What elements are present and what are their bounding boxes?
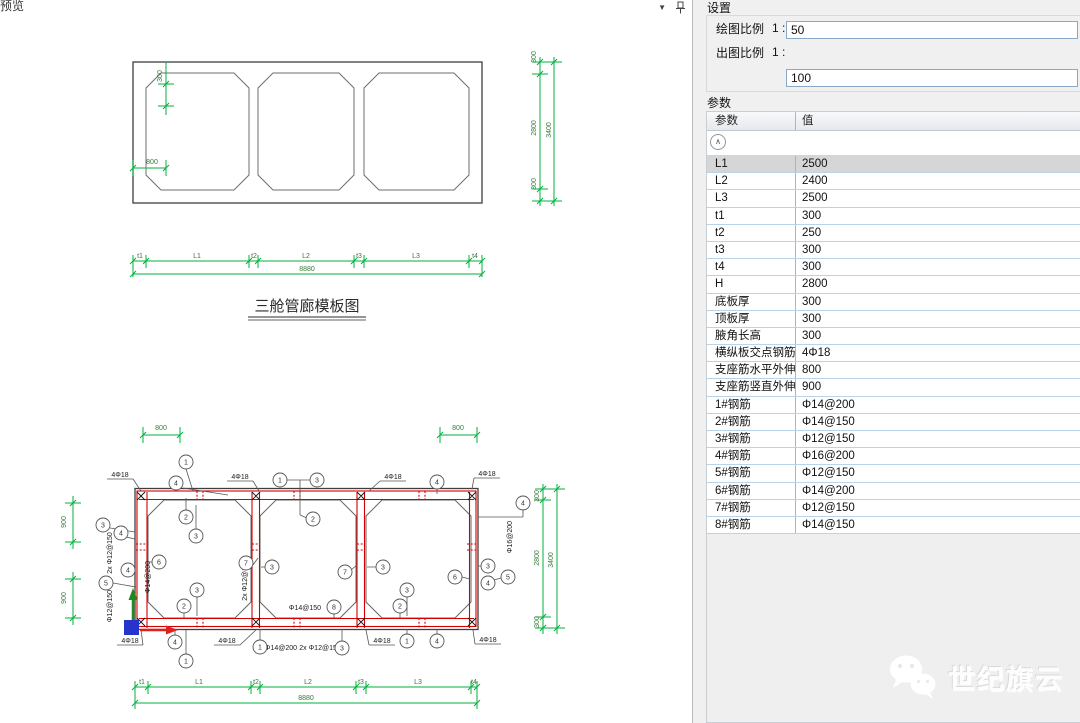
rebar-label: Φ12@150 [107,590,114,622]
dimension-label: 300 [534,490,541,502]
rebar-callout-number: 3 [194,534,198,541]
dimension-label: 300 [157,70,164,82]
rebar-label: 4Φ18 [218,638,235,645]
dimension-label: 8880 [299,266,315,273]
param-value-cell[interactable]: 300 [796,208,1080,224]
param-name-cell: 5#钢筋 [707,465,796,481]
rebar-callout-number: 5 [506,575,510,582]
rebar-label: Φ14@200 [265,645,297,652]
param-value-cell[interactable]: 300 [796,311,1080,327]
param-value-cell[interactable]: 300 [796,259,1080,275]
rebar-callout-number: 2 [184,515,188,522]
dimension-label: 2800 [534,550,541,566]
param-name-column-header[interactable]: 参数 [707,112,796,130]
param-name-cell: 3#钢筋 [707,431,796,447]
param-row[interactable]: 4#钢筋Φ16@200 [707,448,1080,465]
dimension-label: 900 [61,592,68,604]
param-value-column-header[interactable]: 值 [796,112,1080,130]
param-value-cell[interactable]: 300 [796,294,1080,310]
dimension-label: 300 [534,616,541,628]
param-row[interactable]: 横纵板交点钢筋4Φ18 [707,345,1080,362]
param-value-cell[interactable]: Φ12@150 [796,500,1080,516]
param-name-cell: 2#钢筋 [707,414,796,430]
ucs-axis-icon [124,588,178,635]
param-row[interactable]: 7#钢筋Φ12@150 [707,500,1080,517]
wechat-icon [886,653,940,701]
rebar-callout-number: 4 [486,581,490,588]
rebar-callout-number: 1 [278,478,282,485]
parameters-grid: 参数 值 ∧ L12500L22400L32500t1300t2250t3300… [706,111,1080,723]
dimension-label: 3400 [548,552,555,568]
rebar-callout-number: 4 [435,480,439,487]
param-row[interactable]: L12500 [707,156,1080,173]
rebar-label: Φ16@200 [507,521,514,553]
param-value-cell[interactable]: 300 [796,328,1080,344]
param-name-cell: 支座筋竖直外伸 [707,379,796,395]
dimension-label: t3 [356,253,362,260]
param-row[interactable]: t3300 [707,242,1080,259]
param-name-cell: L1 [707,156,796,172]
dimension-label: 800 [452,425,464,432]
parameters-table-body: L12500L22400L32500t1300t2250t3300t4300H2… [707,156,1080,534]
rebar-callout-number: 2 [311,517,315,524]
param-name-cell: 底板厚 [707,294,796,310]
param-value-cell[interactable]: Φ12@150 [796,431,1080,447]
rebar-callout-number: 6 [453,575,457,582]
param-row[interactable]: 2#钢筋Φ14@150 [707,414,1080,431]
preview-panel: 预览 ▼ 三舱管廊模板图 30080030028003003400t1L1t2L… [0,0,692,723]
dimension-label: t4 [472,253,478,260]
properties-panel: 设置 绘图比例 1 : 出图比例 1 : 参数 参数 值 ∧ L12500L22… [692,0,1080,723]
param-row[interactable]: H2800 [707,276,1080,293]
param-name-cell: 顶板厚 [707,311,796,327]
dimension-label: 2800 [531,120,538,136]
rebar-callout-number: 3 [486,564,490,571]
dimension-label: 800 [146,159,158,166]
param-row[interactable]: 支座筋竖直外伸900 [707,379,1080,396]
rebar-label: 4Φ18 [384,474,401,481]
dimension-label: 3400 [546,122,553,138]
rebar-label: 4Φ18 [231,474,248,481]
rebar-callout-number: 2 [398,604,402,611]
param-row[interactable]: 1#钢筋Φ14@200 [707,397,1080,414]
dimension-label: L2 [302,253,310,260]
rebar-callout-number: 4 [126,568,130,575]
rebar-callout-number: 1 [184,659,188,666]
param-row[interactable]: 底板厚300 [707,294,1080,311]
param-name-cell: t3 [707,242,796,258]
param-row[interactable]: 6#钢筋Φ14@200 [707,483,1080,500]
param-name-cell: t2 [707,225,796,241]
rebar-label: Φ14@200 [145,561,152,593]
rebar-callout-number: 1 [258,645,262,652]
rebar-label: 4Φ18 [373,638,390,645]
param-name-cell: L3 [707,190,796,206]
param-value-cell[interactable]: Φ14@200 [796,397,1080,413]
settings-section-title: 设置 [707,0,731,16]
rebar-callout-number: 5 [104,581,108,588]
rebar-callout-number: 7 [343,570,347,577]
rebar-callout-number: 3 [195,588,199,595]
dimension-label: t4 [471,679,477,686]
rebar-label: Φ14@150 [289,605,321,612]
param-name-cell: H [707,276,796,292]
dimension-label: t3 [358,679,364,686]
dimension-label: L3 [412,253,420,260]
param-row[interactable]: 腋角长高300 [707,328,1080,345]
settings-group: 绘图比例 1 : 出图比例 1 : [706,15,1080,92]
rebar-callout-number: 4 [174,481,178,488]
param-value-cell[interactable]: 2400 [796,173,1080,189]
dimension-label: L1 [195,679,203,686]
param-row[interactable]: 3#钢筋Φ12@150 [707,431,1080,448]
plot-scale-prefix: 1 : [772,45,785,59]
rebar-callout-number: 6 [157,560,161,567]
param-name-cell: t4 [707,259,796,275]
dimension-label: t1 [137,253,143,260]
param-row[interactable]: t1300 [707,208,1080,225]
param-value-cell[interactable]: Φ14@200 [796,483,1080,499]
rebar-callout-number: 4 [521,501,525,508]
param-name-cell: t1 [707,208,796,224]
group-row: ∧ [707,131,1080,156]
rebar-callout-number: 4 [173,640,177,647]
rebar-label: 4Φ18 [121,638,138,645]
param-value-cell[interactable]: Φ16@200 [796,448,1080,464]
param-name-cell: 1#钢筋 [707,397,796,413]
param-value-cell[interactable]: 250 [796,225,1080,241]
draw-scale-label: 绘图比例 [716,20,764,37]
reinforcement-view: 8008009009004Φ184Φ184Φ184Φ18Φ16@2002x Φ1… [61,425,565,709]
rebar-callout-number: 3 [101,523,105,530]
rebar-label: 2x Φ12@150 [107,532,114,574]
param-name-cell: 横纵板交点钢筋 [707,345,796,361]
param-row[interactable]: 顶板厚300 [707,311,1080,328]
param-name-cell: 8#钢筋 [707,517,796,533]
param-value-cell[interactable]: Φ14@150 [796,414,1080,430]
param-value-cell[interactable]: 2500 [796,190,1080,206]
rebar-callout-number: 3 [405,588,409,595]
dimension-label: 8880 [298,695,314,702]
plot-scale-label: 出图比例 [716,44,764,61]
rebar-callout-number: 2 [182,604,186,611]
draw-scale-prefix: 1 : [772,21,785,35]
collapse-group-button[interactable]: ∧ [710,134,726,150]
rebar-callout-number: 1 [184,460,188,467]
rebar-label: 4Φ18 [479,637,496,644]
rebar-callout-number: 3 [340,646,344,653]
dimension-label: t2 [253,679,259,686]
dimension-label: 800 [155,425,167,432]
dimension-label: L1 [193,253,201,260]
param-row[interactable]: t2250 [707,225,1080,242]
parameters-grid-header: 参数 值 [707,112,1080,131]
drawing-title: 三舱管廊模板图 [254,297,359,315]
dimension-label: 300 [531,178,538,190]
param-value-cell[interactable]: 900 [796,379,1080,395]
rebar-callout-number: 3 [315,478,319,485]
dimension-label: L2 [304,679,312,686]
rebar-callout-number: 1 [405,639,409,646]
param-name-cell: 6#钢筋 [707,483,796,499]
rebar-label: 4Φ18 [478,471,495,478]
dimension-label: L3 [414,679,422,686]
param-value-cell[interactable]: 800 [796,362,1080,378]
rebar-callout-number: 8 [332,605,336,612]
param-name-cell: L2 [707,173,796,189]
draw-scale-input[interactable] [786,21,1078,39]
brand-watermark: 世纪旗云 [886,653,1064,701]
dimension-label: 900 [61,516,68,528]
param-name-cell: 支座筋水平外伸 [707,362,796,378]
param-value-cell[interactable]: Φ12@150 [796,465,1080,481]
param-row[interactable]: 5#钢筋Φ12@150 [707,465,1080,482]
rebar-callout-number: 3 [270,565,274,572]
brand-name: 世纪旗云 [948,658,1064,697]
dimension-label: t1 [139,679,145,686]
formwork-view: 三舱管廊模板图 30080030028003003400t1L1t2L2t3L3… [130,51,562,320]
param-value-cell[interactable]: 300 [796,242,1080,258]
rebar-label: 4Φ18 [111,472,128,479]
param-name-cell: 7#钢筋 [707,500,796,516]
param-row[interactable]: L22400 [707,173,1080,190]
param-row[interactable]: t4300 [707,259,1080,276]
param-name-cell: 4#钢筋 [707,448,796,464]
cad-preview-drawing[interactable]: 三舱管廊模板图 30080030028003003400t1L1t2L2t3L3… [0,0,692,723]
dimension-label: t2 [251,253,257,260]
param-row[interactable]: L32500 [707,190,1080,207]
rebar-callout-number: 4 [435,639,439,646]
param-row[interactable]: 8#钢筋Φ14@150 [707,517,1080,534]
dimension-label: 300 [531,51,538,63]
rebar-callout-number: 7 [244,561,248,568]
plot-scale-input[interactable] [786,69,1078,87]
param-name-cell: 腋角长高 [707,328,796,344]
rebar-callout-number: 4 [119,531,123,538]
param-value-cell[interactable]: 2500 [796,156,1080,172]
param-value-cell[interactable]: Φ14@150 [796,517,1080,533]
param-row[interactable]: 支座筋水平外伸800 [707,362,1080,379]
rebar-callout-number: 3 [381,565,385,572]
parameters-section-title: 参数 [707,94,731,111]
param-value-cell[interactable]: 2800 [796,276,1080,292]
param-value-cell[interactable]: 4Φ18 [796,345,1080,361]
